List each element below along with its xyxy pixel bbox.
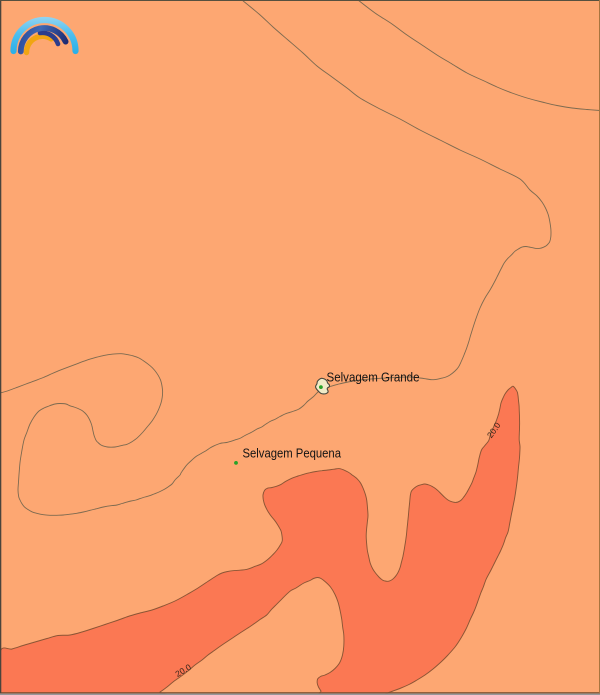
svg-text:Selvagem Pequena: Selvagem Pequena — [243, 446, 342, 461]
svg-text:Selvagem Grande: Selvagem Grande — [327, 370, 420, 385]
